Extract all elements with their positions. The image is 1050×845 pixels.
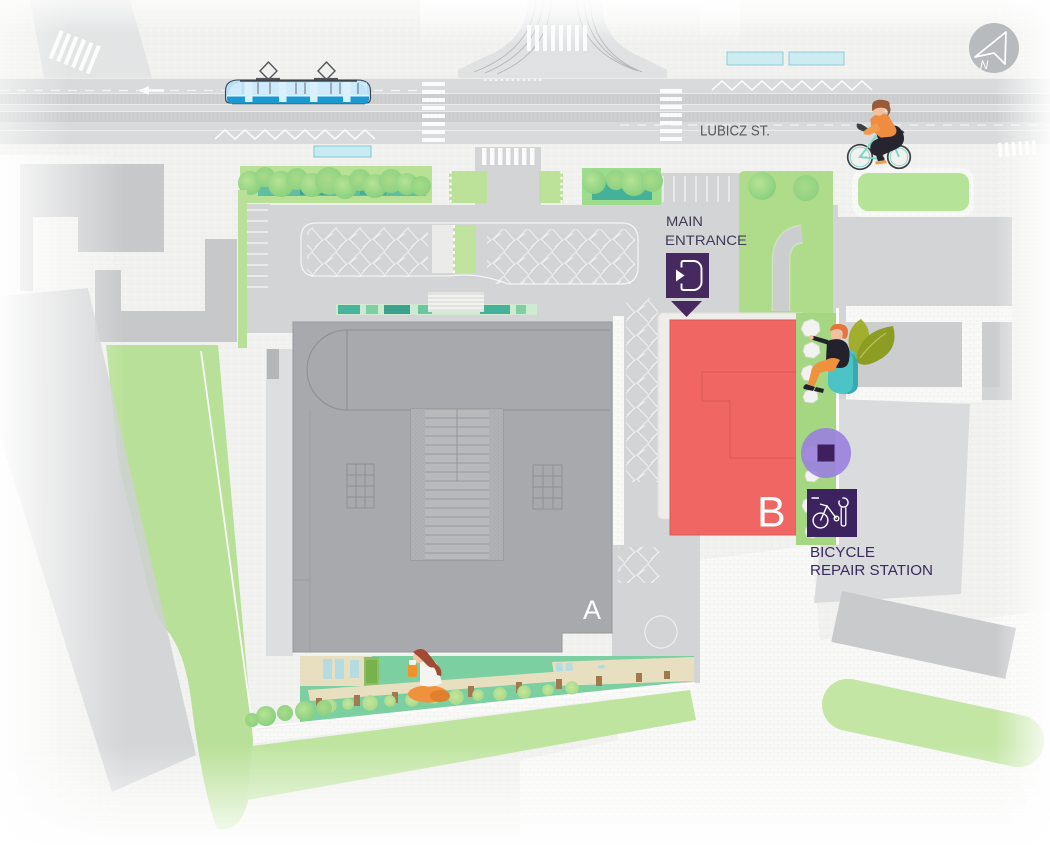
svg-text:ENTRANCE: ENTRANCE [665, 233, 747, 248]
svg-text:N: N [980, 60, 989, 72]
svg-text:LUBICZ ST.: LUBICZ ST. [700, 123, 770, 140]
svg-text:MAIN: MAIN [666, 214, 703, 229]
svg-text:B: B [757, 489, 786, 537]
svg-text:A: A [583, 595, 601, 625]
svg-text:BICYCLE: BICYCLE [810, 544, 875, 561]
svg-text:REPAIR STATION: REPAIR STATION [810, 562, 933, 579]
